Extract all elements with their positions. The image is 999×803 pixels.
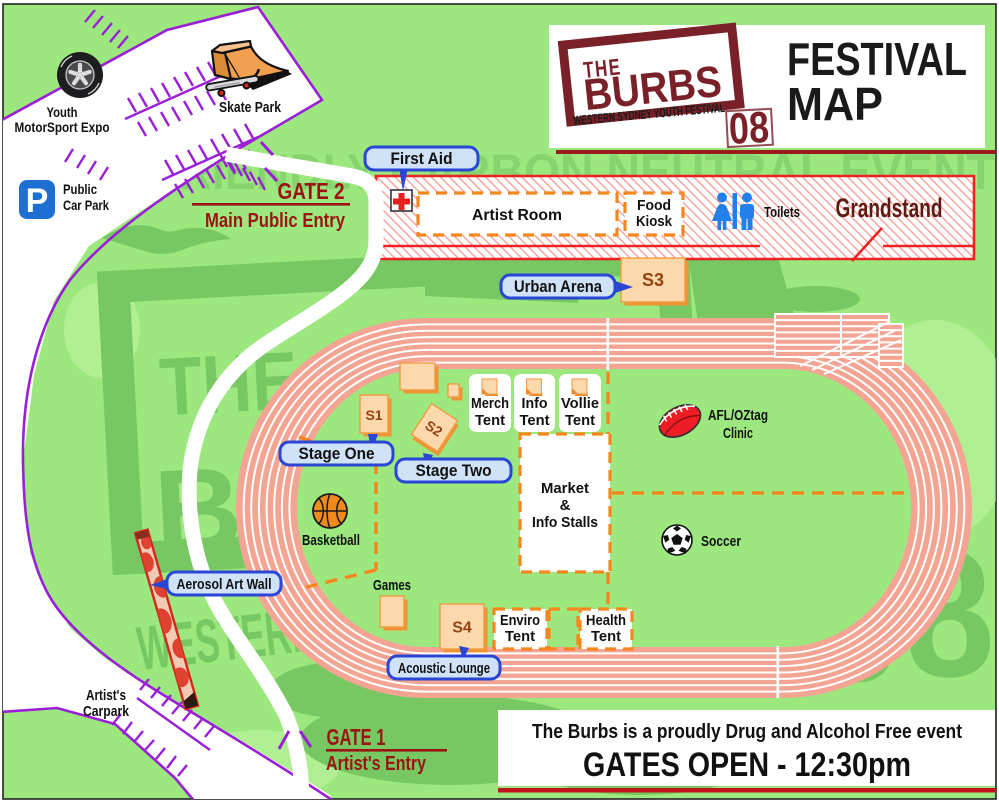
svg-text:P: P bbox=[26, 182, 49, 220]
svg-text:Toilets: Toilets bbox=[764, 204, 800, 221]
svg-text:Health: Health bbox=[586, 613, 626, 629]
svg-text:Tent: Tent bbox=[505, 629, 535, 645]
svg-text:Artist Room: Artist Room bbox=[472, 207, 562, 224]
svg-text:Market: Market bbox=[541, 480, 589, 497]
svg-text:Car Park: Car Park bbox=[63, 197, 109, 213]
svg-text:Games: Games bbox=[373, 577, 411, 594]
svg-text:Vollie: Vollie bbox=[561, 395, 599, 412]
svg-text:Kiosk: Kiosk bbox=[636, 214, 673, 230]
svg-text:Grandstand: Grandstand bbox=[836, 193, 943, 223]
svg-text:Clinic: Clinic bbox=[723, 425, 753, 442]
svg-text:Skate Park: Skate Park bbox=[219, 99, 282, 116]
svg-text:Public: Public bbox=[63, 181, 97, 197]
svg-text:Tent: Tent bbox=[520, 412, 550, 429]
svg-text:Soccer: Soccer bbox=[701, 533, 741, 550]
svg-text:Tent: Tent bbox=[475, 412, 505, 429]
svg-text:Merch: Merch bbox=[471, 395, 509, 412]
svg-text:AFL/OZtag: AFL/OZtag bbox=[708, 407, 768, 424]
svg-text:MAP: MAP bbox=[787, 78, 883, 130]
svg-text:Basketball: Basketball bbox=[302, 532, 360, 549]
svg-text:Urban Arena: Urban Arena bbox=[514, 278, 603, 296]
svg-text:S3: S3 bbox=[642, 270, 664, 290]
svg-text:Tent: Tent bbox=[591, 629, 621, 645]
svg-text:S1: S1 bbox=[365, 407, 382, 423]
svg-text:GATE 2: GATE 2 bbox=[278, 178, 345, 204]
svg-text:Artist's: Artist's bbox=[86, 687, 126, 704]
svg-text:The Burbs is a proudly Drug an: The Burbs is a proudly Drug and Alcohol … bbox=[532, 720, 962, 743]
svg-text:Info Stalls: Info Stalls bbox=[532, 514, 598, 531]
svg-text:Artist's Entry: Artist's Entry bbox=[326, 753, 427, 775]
svg-text:Food: Food bbox=[637, 198, 671, 214]
svg-text:&: & bbox=[560, 497, 571, 514]
svg-text:Carpark: Carpark bbox=[83, 703, 130, 720]
svg-text:Youth: Youth bbox=[47, 104, 78, 120]
svg-text:S4: S4 bbox=[452, 620, 472, 637]
svg-text:First Aid: First Aid bbox=[391, 150, 453, 168]
svg-text:Info: Info bbox=[522, 395, 548, 412]
svg-text:MotorSport Expo: MotorSport Expo bbox=[15, 119, 110, 135]
svg-text:Enviro: Enviro bbox=[500, 613, 540, 629]
svg-text:GATES OPEN - 12:30pm: GATES OPEN - 12:30pm bbox=[583, 746, 911, 784]
svg-text:Stage One: Stage One bbox=[299, 445, 375, 463]
svg-text:GATE 1: GATE 1 bbox=[327, 724, 386, 750]
svg-text:Stage Two: Stage Two bbox=[416, 462, 492, 480]
svg-text:Acoustic Lounge: Acoustic Lounge bbox=[398, 660, 490, 677]
svg-text:08: 08 bbox=[728, 103, 771, 154]
svg-text:Aerosol Art Wall: Aerosol Art Wall bbox=[177, 576, 272, 593]
svg-text:Main Public Entry: Main Public Entry bbox=[205, 210, 346, 232]
svg-text:Tent: Tent bbox=[565, 412, 595, 429]
